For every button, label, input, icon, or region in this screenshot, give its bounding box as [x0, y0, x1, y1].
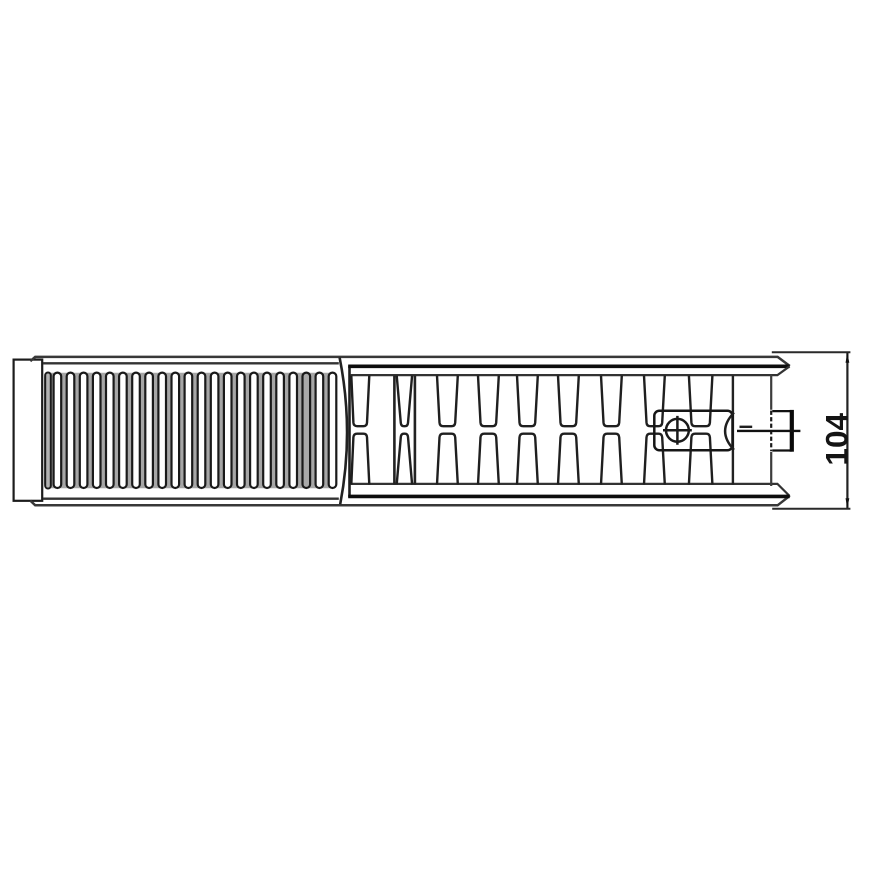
svg-text:104: 104	[818, 413, 854, 466]
